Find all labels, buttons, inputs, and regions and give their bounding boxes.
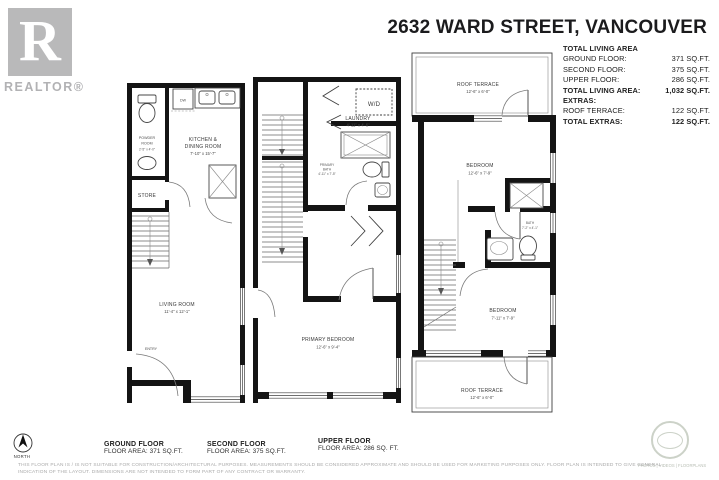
kitchen-dims: 7'-10" x 15'-7" (190, 151, 216, 156)
powder-room-toilet-icon (138, 95, 156, 123)
second-windows (269, 255, 401, 399)
disclaimer-line-1: THIS FLOOR PLAN IS / IS NOT SUITABLE FOR… (18, 463, 694, 470)
ground-floor-plan: POWDER ROOM 2'-5" x 4'-0" DW KITCHEN & D… (127, 83, 245, 403)
shower-icon (341, 132, 390, 158)
bedroom-top-label: BEDROOM (466, 163, 493, 169)
north-label: NORTH (4, 454, 40, 459)
bath-sink-icon (375, 183, 390, 197)
bedroom-bottom-label: BEDROOM (489, 308, 516, 314)
summary-heading: TOTAL LIVING AREA (563, 44, 710, 54)
realtor-r-glyph: R (19, 8, 61, 73)
svg-text:BATH: BATH (323, 168, 332, 172)
powder-room-label: POWDER (139, 136, 156, 140)
summary-row-total-extras: TOTAL EXTRAS:122 SQ.FT. (563, 117, 710, 127)
ground-stairs (132, 212, 169, 268)
upper-closet-icon (510, 183, 543, 208)
roof-terrace-bottom-label: ROOF TERRACE (461, 388, 503, 394)
ground-door-arcs (127, 182, 232, 396)
living-room-dims: 11'-4" x 12'-1" (164, 309, 190, 314)
entry-label: ENTRY (145, 347, 158, 351)
upper-bath-toilet-icon (520, 236, 537, 260)
svg-text:ROOM: ROOM (141, 142, 152, 146)
summary-row-ground: GROUND FLOOR:371 SQ.FT. (563, 54, 710, 64)
upper-floor-plan: ROOF TERRACE 12'-6" x 6'-0" BEDROOM 12'-… (408, 49, 556, 416)
kitchen-label: KITCHEN & (189, 137, 218, 143)
ground-windows (191, 288, 245, 403)
laundry-dims: 4'-11" x 4'-6" (346, 123, 370, 128)
upper-stairs (424, 240, 456, 330)
upper-bath-sink-icon (487, 238, 513, 260)
badge-inner-ring (657, 432, 683, 449)
second-floor-caption: SECOND FLOOR FLOOR AREA: 375 SQ.FT. (207, 441, 286, 455)
upper-door-arcs (460, 90, 528, 384)
ground-floor-caption: GROUND FLOOR FLOOR AREA: 371 SQ.FT. (104, 441, 183, 455)
roof-terrace-bottom-dims: 12'-6" x 6'-0" (470, 395, 494, 400)
primary-bath-dims: 4'-11" x 7'-5" (318, 172, 336, 176)
primary-bedroom-label: PRIMARY BEDROOM (302, 337, 355, 343)
second-floor-plan: W/D LAUNDRY 4'-11" x 4'-6" PRIMARY BATH … (253, 77, 401, 403)
powder-room-sink-icon (138, 157, 156, 170)
upper-terrace-bottom-parapet (412, 357, 552, 412)
marketing-badge-icon (651, 421, 689, 459)
bath-label: BATH (526, 221, 535, 225)
second-stairs (262, 115, 303, 262)
stove-icon (209, 165, 236, 198)
bedroom-bottom-dims: 7'-11" x 7'-9" (491, 316, 515, 321)
summary-row-extras: EXTRAS: (563, 96, 710, 106)
upper-floor-caption: UPPER FLOOR FLOOR AREA: 286 SQ. FT. (318, 438, 399, 452)
primary-bedroom-dims: 12'-6" x 9'-4" (316, 345, 340, 350)
washer-dryer-label: W/D (368, 102, 381, 108)
second-walls (253, 77, 401, 403)
bath-dims: 7'-2" x 4'-1" (522, 226, 538, 230)
bedroom-top-dims: 12'-6" x 7'-9" (468, 171, 492, 176)
summary-row-roof-terrace: ROOF TERRACE:122 SQ.FT. (563, 106, 710, 116)
store-label: STORE (138, 193, 157, 199)
laundry-label: LAUNDRY (345, 116, 371, 122)
area-summary: TOTAL LIVING AREA GROUND FLOOR:371 SQ.FT… (563, 44, 710, 127)
primary-bath-label: PRIMARY (320, 163, 335, 167)
summary-row-second: SECOND FLOOR:375 SQ.FT. (563, 65, 710, 75)
roof-terrace-top-label: ROOF TERRACE (457, 82, 499, 88)
ground-room-labels: POWDER ROOM 2'-5" x 4'-0" DW KITCHEN & D… (138, 99, 221, 352)
powder-room-dims: 2'-5" x 4'-0" (139, 148, 155, 152)
kitchen-sink-icon (195, 88, 240, 108)
dishwasher-label: DW (180, 99, 187, 103)
bath-toilet-icon (363, 162, 389, 177)
summary-row-total-living: TOTAL LIVING AREA:1,032 SQ.FT. (563, 86, 710, 96)
roof-terrace-top-dims: 12'-6" x 6'-0" (466, 89, 490, 94)
disclaimer: THIS FLOOR PLAN IS / IS NOT SUITABLE FOR… (18, 463, 694, 476)
page-title: 2632 WARD STREET, VANCOUVER (387, 17, 707, 39)
realtor-logo: R (8, 8, 72, 76)
floor-plan-sheet: R REALTOR® 2632 WARD STREET, VANCOUVER T… (0, 0, 719, 480)
living-room-label: LIVING ROOM (159, 302, 195, 308)
disclaimer-line-2: INDICATION OF THE LAYOUT. DIMENSIONS ARE… (18, 470, 694, 477)
svg-text:DINING ROOM: DINING ROOM (185, 144, 222, 150)
summary-row-upper: UPPER FLOOR:286 SQ.FT. (563, 75, 710, 85)
realtor-wordmark: REALTOR® (4, 80, 94, 94)
